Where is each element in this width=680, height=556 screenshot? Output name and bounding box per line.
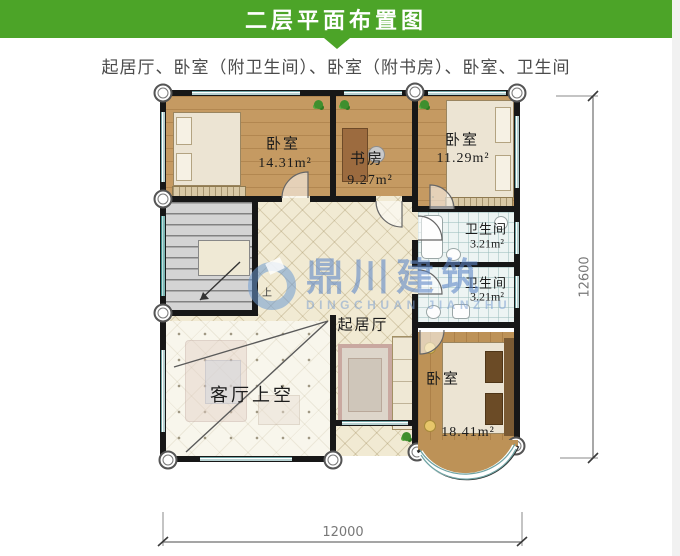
window-right-bath2 xyxy=(515,276,519,308)
area-study: 9.27m² xyxy=(347,173,393,189)
wall-study-left xyxy=(330,90,336,202)
plant-icon xyxy=(402,432,411,441)
plant-icon xyxy=(420,100,429,109)
column-icon xyxy=(508,84,527,103)
right-edge-strip xyxy=(672,0,680,556)
stair-up-label: 上 xyxy=(262,284,272,299)
lamp-icon xyxy=(424,420,436,432)
living-sofa xyxy=(392,336,414,430)
area-bedroom-br: 18.41m² xyxy=(441,425,495,441)
window-bottom-void xyxy=(200,457,292,461)
dimension-height: 12600 xyxy=(578,256,593,297)
column-icon xyxy=(406,83,425,102)
label-bedroom-br: 卧室 xyxy=(426,368,460,389)
column-icon xyxy=(154,190,173,209)
label-study: 书房 xyxy=(350,148,384,169)
sink-2 xyxy=(452,304,470,319)
headboard-bottom-right xyxy=(504,338,514,436)
label-living-hall: 起居厅 xyxy=(337,314,388,335)
area-bath2: 3.21m² xyxy=(470,290,504,305)
window-top-bedroom-tl xyxy=(192,91,300,95)
wall-bedroom-tl-bottom-a xyxy=(160,196,282,202)
column-icon xyxy=(159,451,178,470)
bathtub-1 xyxy=(421,215,443,259)
bay-window-band xyxy=(420,446,515,476)
area-bedroom-tl: 14.31m² xyxy=(258,156,312,172)
room-summary-subtitle: 起居厅、卧室（附卫生间）、卧室（附书房）、卧室、卫生间 xyxy=(0,53,672,78)
plant-icon xyxy=(314,100,323,109)
window-right-bedroom-tr xyxy=(515,116,519,188)
dimension-width: 12000 xyxy=(322,525,363,540)
toilet-1 xyxy=(446,248,461,261)
pillow xyxy=(495,107,511,143)
column-icon xyxy=(408,443,427,462)
pillow xyxy=(495,155,511,191)
wall-bath-divider xyxy=(418,262,520,267)
lamp-icon xyxy=(424,342,436,354)
pillow xyxy=(485,351,503,383)
staircase xyxy=(166,202,252,310)
wall-void-right xyxy=(330,315,336,462)
window-left-stair xyxy=(161,216,165,296)
label-bedroom-tr: 卧室 xyxy=(445,129,479,150)
pillow xyxy=(176,153,192,181)
header-pointer-triangle xyxy=(324,38,350,49)
wall-hall-bath-b xyxy=(412,294,418,322)
spacer xyxy=(432,196,434,198)
wall-bedroom-br-left xyxy=(412,326,418,450)
bay-outer-wall xyxy=(418,446,518,479)
wall-study-right xyxy=(412,90,418,212)
stair-flight-left xyxy=(166,202,200,310)
area-bath1: 3.21m² xyxy=(470,237,504,252)
label-bedroom-tl: 卧室 xyxy=(266,133,300,154)
wall-stair-bottom xyxy=(160,310,258,316)
window-left-bedroom-tl xyxy=(161,112,165,182)
column-icon xyxy=(154,84,173,103)
bay-glass-line xyxy=(421,449,516,479)
wall-hall-bath-a xyxy=(412,240,418,267)
page-title: 二层平面布置图 xyxy=(245,3,427,35)
stair-landing xyxy=(198,240,250,276)
wall-bedroom-tl-bottom-b xyxy=(310,196,336,202)
column-icon xyxy=(324,451,343,470)
wall-bath1-top xyxy=(412,206,520,212)
plant-icon xyxy=(340,100,349,109)
window-bottom-living xyxy=(342,421,408,425)
wall-study-bottom-a xyxy=(336,196,376,202)
window-top-bedroom-tr xyxy=(428,91,506,95)
toilet-2 xyxy=(426,305,441,319)
wall-bedroom-br-top xyxy=(412,322,520,328)
wall-study-bottom-b xyxy=(402,196,412,202)
pillow xyxy=(485,393,503,425)
spacer xyxy=(430,287,432,289)
window-right-bath1 xyxy=(515,222,519,254)
column-icon xyxy=(154,304,173,323)
bed-top-left xyxy=(173,112,241,186)
column-icon xyxy=(507,437,526,456)
floor-plan-article-image: 二层平面布置图 起居厅、卧室（附卫生间）、卧室（附书房）、卧室、卫生间 上 xyxy=(0,0,680,556)
pillow xyxy=(176,117,192,145)
label-living-void: 客厅上空 xyxy=(210,381,294,407)
area-bedroom-tr: 11.29m² xyxy=(436,151,489,167)
window-left-void xyxy=(161,350,165,432)
label-bath1: 卫生间 xyxy=(465,219,507,238)
living-rug xyxy=(338,344,392,426)
wall-stair-right xyxy=(252,202,258,310)
window-top-study xyxy=(344,91,402,95)
header-banner: 二层平面布置图 xyxy=(0,0,672,38)
coffee-table xyxy=(348,358,382,412)
